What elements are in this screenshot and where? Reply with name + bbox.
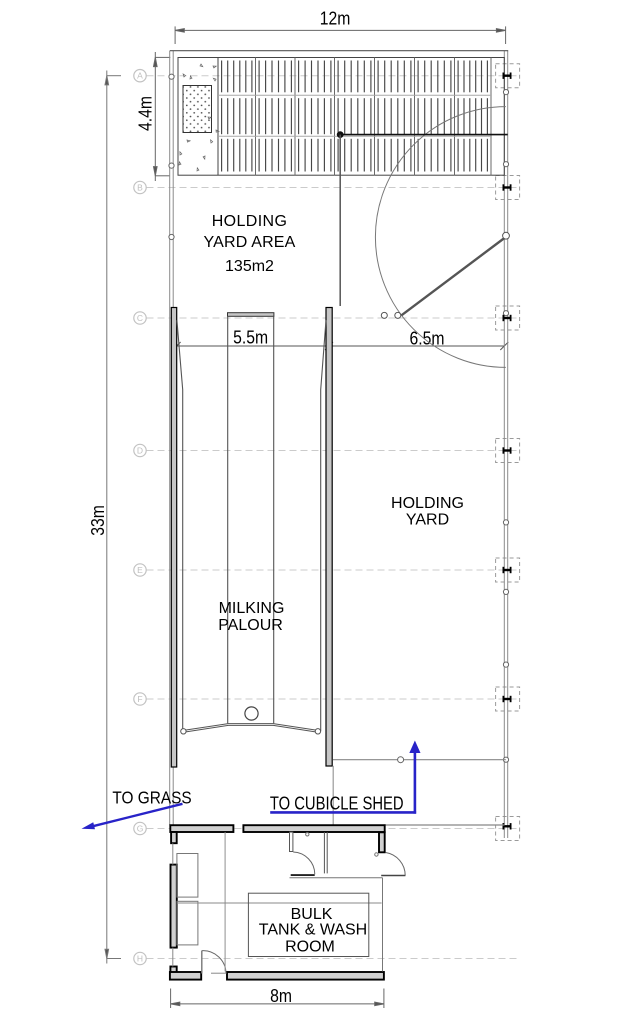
svg-text:H: H bbox=[137, 954, 143, 964]
svg-text:HOLDING: HOLDING bbox=[391, 495, 464, 512]
svg-text:12m: 12m bbox=[320, 7, 351, 29]
svg-text:MILKING: MILKING bbox=[219, 600, 285, 617]
svg-text:ROOM: ROOM bbox=[285, 939, 335, 956]
svg-text:135m2: 135m2 bbox=[225, 258, 274, 275]
svg-text:TO CUBICLE SHED: TO CUBICLE SHED bbox=[270, 793, 404, 814]
svg-text:A: A bbox=[137, 71, 143, 81]
svg-text:F: F bbox=[137, 694, 142, 704]
svg-text:33m: 33m bbox=[87, 505, 109, 536]
svg-text:G: G bbox=[137, 824, 144, 834]
svg-text:C: C bbox=[137, 313, 143, 323]
svg-text:YARD: YARD bbox=[406, 512, 449, 529]
svg-text:YARD AREA: YARD AREA bbox=[203, 234, 295, 251]
svg-text:E: E bbox=[137, 565, 143, 575]
svg-text:HOLDING: HOLDING bbox=[212, 213, 288, 230]
svg-text:5.5m: 5.5m bbox=[233, 326, 268, 348]
svg-text:B: B bbox=[137, 183, 143, 193]
svg-text:8m: 8m bbox=[270, 985, 292, 1007]
svg-text:4.4m: 4.4m bbox=[134, 96, 156, 131]
svg-text:D: D bbox=[137, 446, 143, 456]
svg-text:BULK: BULK bbox=[291, 906, 333, 923]
svg-text:PALOUR: PALOUR bbox=[218, 617, 283, 634]
svg-text:TANK & WASH: TANK & WASH bbox=[259, 922, 367, 939]
